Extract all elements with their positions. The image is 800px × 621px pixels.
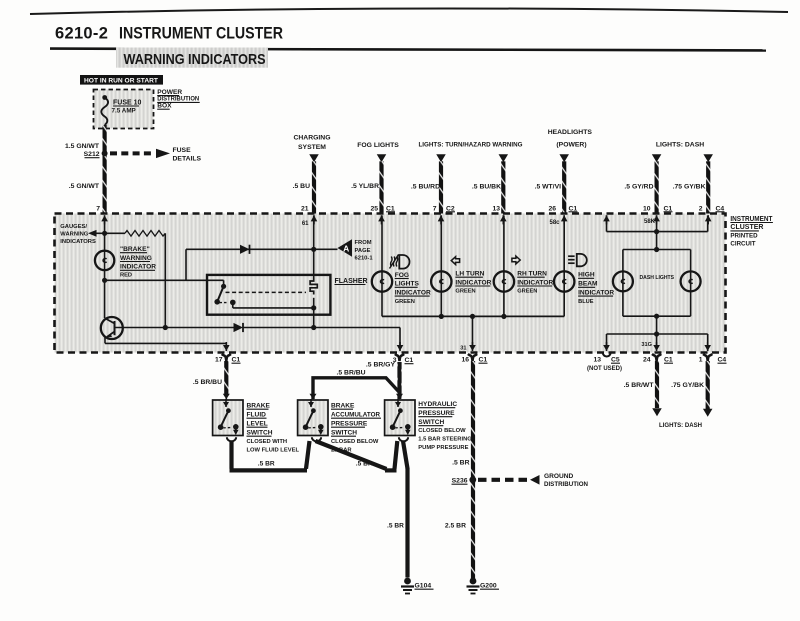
svg-text:GROUND: GROUND xyxy=(544,473,574,480)
svg-text:C1: C1 xyxy=(232,357,241,364)
svg-text:.5 BR/GY: .5 BR/GY xyxy=(366,361,396,368)
svg-text:.5 BU: .5 BU xyxy=(293,183,310,190)
svg-text:FROM: FROM xyxy=(355,240,372,246)
svg-text:2.5 BR: 2.5 BR xyxy=(445,523,466,530)
svg-text:FOG LIGHTS: FOG LIGHTS xyxy=(357,142,399,149)
svg-text:BEAM: BEAM xyxy=(578,281,598,288)
svg-text:WARNING INDICATORS: WARNING INDICATORS xyxy=(124,51,266,68)
svg-text:.5 BR/BU: .5 BR/BU xyxy=(193,379,222,386)
svg-text:16: 16 xyxy=(461,357,469,364)
svg-text:(NOT USED): (NOT USED) xyxy=(587,366,622,372)
svg-text:.5 BR: .5 BR xyxy=(258,460,275,467)
svg-text:61: 61 xyxy=(302,221,309,227)
svg-text:CLUSTER: CLUSTER xyxy=(730,224,763,231)
svg-text:LIGHTS: TURN/HAZARD WARNING: LIGHTS: TURN/HAZARD WARNING xyxy=(419,141,523,148)
svg-text:LH TURN: LH TURN xyxy=(455,271,484,278)
svg-text:INDICATOR: INDICATOR xyxy=(455,279,491,286)
svg-text:DETAILS: DETAILS xyxy=(173,155,202,162)
svg-text:FLUID: FLUID xyxy=(247,412,267,419)
svg-text:.5 BU/BK: .5 BU/BK xyxy=(472,183,501,190)
svg-text:FUSE: FUSE xyxy=(173,147,192,154)
svg-text:HEADLIGHTS: HEADLIGHTS xyxy=(548,129,593,136)
svg-text:6210-1: 6210-1 xyxy=(355,256,374,262)
svg-text:.75 GY/BK: .75 GY/BK xyxy=(673,183,706,190)
svg-text:S236: S236 xyxy=(452,478,468,485)
svg-text:C4: C4 xyxy=(718,357,727,364)
svg-text:31: 31 xyxy=(460,345,466,351)
svg-text:BLUE: BLUE xyxy=(578,299,594,305)
svg-text:7.5 AMP: 7.5 AMP xyxy=(112,108,136,115)
svg-text:INDICATOR: INDICATOR xyxy=(517,279,553,286)
svg-text:7: 7 xyxy=(433,205,437,212)
svg-text:INDICATORS: INDICATORS xyxy=(60,239,96,245)
svg-text:INDICATOR: INDICATOR xyxy=(578,289,614,296)
svg-text:58c: 58c xyxy=(550,220,561,226)
svg-text:GREEN: GREEN xyxy=(517,289,537,295)
svg-text:FOG: FOG xyxy=(395,272,409,279)
svg-text:10: 10 xyxy=(643,205,651,212)
svg-text:26: 26 xyxy=(548,205,556,212)
svg-text:A: A xyxy=(343,243,349,253)
svg-text:.5 BR/WT: .5 BR/WT xyxy=(624,382,655,389)
svg-text:.5 GN/WT: .5 GN/WT xyxy=(69,183,100,190)
svg-text:ACCUMULATOR: ACCUMULATOR xyxy=(331,412,380,419)
svg-text:24: 24 xyxy=(643,357,651,364)
svg-text:LEVEL: LEVEL xyxy=(247,421,268,428)
svg-text:S212: S212 xyxy=(84,151,100,158)
svg-text:LIGHTS: DASH: LIGHTS: DASH xyxy=(656,141,704,148)
svg-text:WARNING: WARNING xyxy=(120,255,152,262)
svg-text:SWITCH: SWITCH xyxy=(418,419,444,426)
svg-text:WARNING: WARNING xyxy=(60,232,89,238)
svg-text:1.5 GN/WT: 1.5 GN/WT xyxy=(65,143,100,150)
svg-text:CLOSED BELOW: CLOSED BELOW xyxy=(418,428,466,434)
svg-text:LOW FLUID LEVEL: LOW FLUID LEVEL xyxy=(247,448,300,454)
svg-text:SWITCH: SWITCH xyxy=(331,430,357,437)
svg-text:.5 YL/BR: .5 YL/BR xyxy=(351,183,379,190)
svg-text:RH TURN: RH TURN xyxy=(517,271,547,278)
svg-text:RED: RED xyxy=(120,273,132,279)
svg-text:7: 7 xyxy=(96,205,100,212)
svg-text:58K: 58K xyxy=(644,219,656,225)
svg-text:HOT IN RUN OR START: HOT IN RUN OR START xyxy=(84,78,158,85)
svg-text:INSTRUMENT: INSTRUMENT xyxy=(730,216,773,223)
svg-text:GAUGES/: GAUGES/ xyxy=(60,224,87,230)
svg-text:GREEN: GREEN xyxy=(395,299,415,305)
svg-text:CHARGING: CHARGING xyxy=(293,134,330,141)
svg-text:.5 BR: .5 BR xyxy=(387,523,404,530)
svg-text:C1: C1 xyxy=(479,357,488,364)
svg-text:FLASHER: FLASHER xyxy=(335,278,368,285)
svg-text:HYDRAULIC: HYDRAULIC xyxy=(418,401,457,408)
svg-text:LIGHTS: LIGHTS xyxy=(395,281,420,288)
svg-text:C1: C1 xyxy=(405,357,414,364)
svg-text:HIGH: HIGH xyxy=(578,272,595,279)
svg-text:BRAKE: BRAKE xyxy=(331,403,355,410)
svg-text:BOX: BOX xyxy=(157,103,172,110)
svg-text:C5: C5 xyxy=(611,357,620,364)
svg-text:C1: C1 xyxy=(664,357,673,364)
svg-text:CLOSED WITH: CLOSED WITH xyxy=(247,439,288,445)
svg-text:"BRAKE": "BRAKE" xyxy=(120,246,150,253)
svg-text:FUSE 10: FUSE 10 xyxy=(113,99,142,106)
svg-text:SYSTEM: SYSTEM xyxy=(298,144,326,151)
svg-text:.75 GY/BK: .75 GY/BK xyxy=(671,382,704,389)
svg-text:INSTRUMENT CLUSTER: INSTRUMENT CLUSTER xyxy=(119,25,283,43)
svg-text:.5 WT/VI: .5 WT/VI xyxy=(535,183,562,190)
svg-text:PUMP PRESSURE: PUMP PRESSURE xyxy=(418,445,468,451)
svg-text:6210-2: 6210-2 xyxy=(55,25,108,43)
svg-text:G104: G104 xyxy=(415,583,432,590)
svg-text:BRAKE: BRAKE xyxy=(247,403,271,410)
svg-text:LIGHTS: DASH: LIGHTS: DASH xyxy=(659,422,702,429)
svg-text:.5 GY/RD: .5 GY/RD xyxy=(624,183,653,190)
svg-text:2: 2 xyxy=(699,205,703,212)
svg-text:.5 BR/BU: .5 BR/BU xyxy=(337,370,366,377)
svg-text:.5 BU/RD: .5 BU/RD xyxy=(411,183,440,190)
svg-text:INDICATOR: INDICATOR xyxy=(120,264,156,271)
svg-text:17: 17 xyxy=(215,357,223,364)
svg-text:CLOSED BELOW: CLOSED BELOW xyxy=(331,439,379,445)
svg-text:31G: 31G xyxy=(641,342,652,348)
svg-text:21: 21 xyxy=(301,205,309,212)
svg-text:25: 25 xyxy=(370,205,378,212)
svg-text:SWITCH: SWITCH xyxy=(247,430,273,437)
svg-text:13: 13 xyxy=(492,205,500,212)
svg-text:DISTRIBUTION: DISTRIBUTION xyxy=(544,481,588,488)
svg-text:GREEN: GREEN xyxy=(455,289,475,295)
svg-text:1.5 BAR STEERING: 1.5 BAR STEERING xyxy=(418,437,472,443)
svg-text:.5 BR: .5 BR xyxy=(452,460,469,467)
svg-text:PAGE: PAGE xyxy=(355,248,371,254)
svg-text:1: 1 xyxy=(699,357,703,364)
svg-text:INDICATOR: INDICATOR xyxy=(395,289,431,296)
svg-text:DASH LIGHTS: DASH LIGHTS xyxy=(640,275,675,281)
svg-text:(POWER): (POWER) xyxy=(556,141,586,148)
svg-text:PRESSURE: PRESSURE xyxy=(331,421,368,428)
svg-text:PRINTED: PRINTED xyxy=(730,232,758,239)
svg-text:CIRCUIT: CIRCUIT xyxy=(730,241,755,248)
svg-text:13: 13 xyxy=(593,357,601,364)
svg-text:G200: G200 xyxy=(480,583,497,590)
svg-text:PRESSURE: PRESSURE xyxy=(418,410,455,417)
svg-text:.5 BR: .5 BR xyxy=(356,460,373,467)
